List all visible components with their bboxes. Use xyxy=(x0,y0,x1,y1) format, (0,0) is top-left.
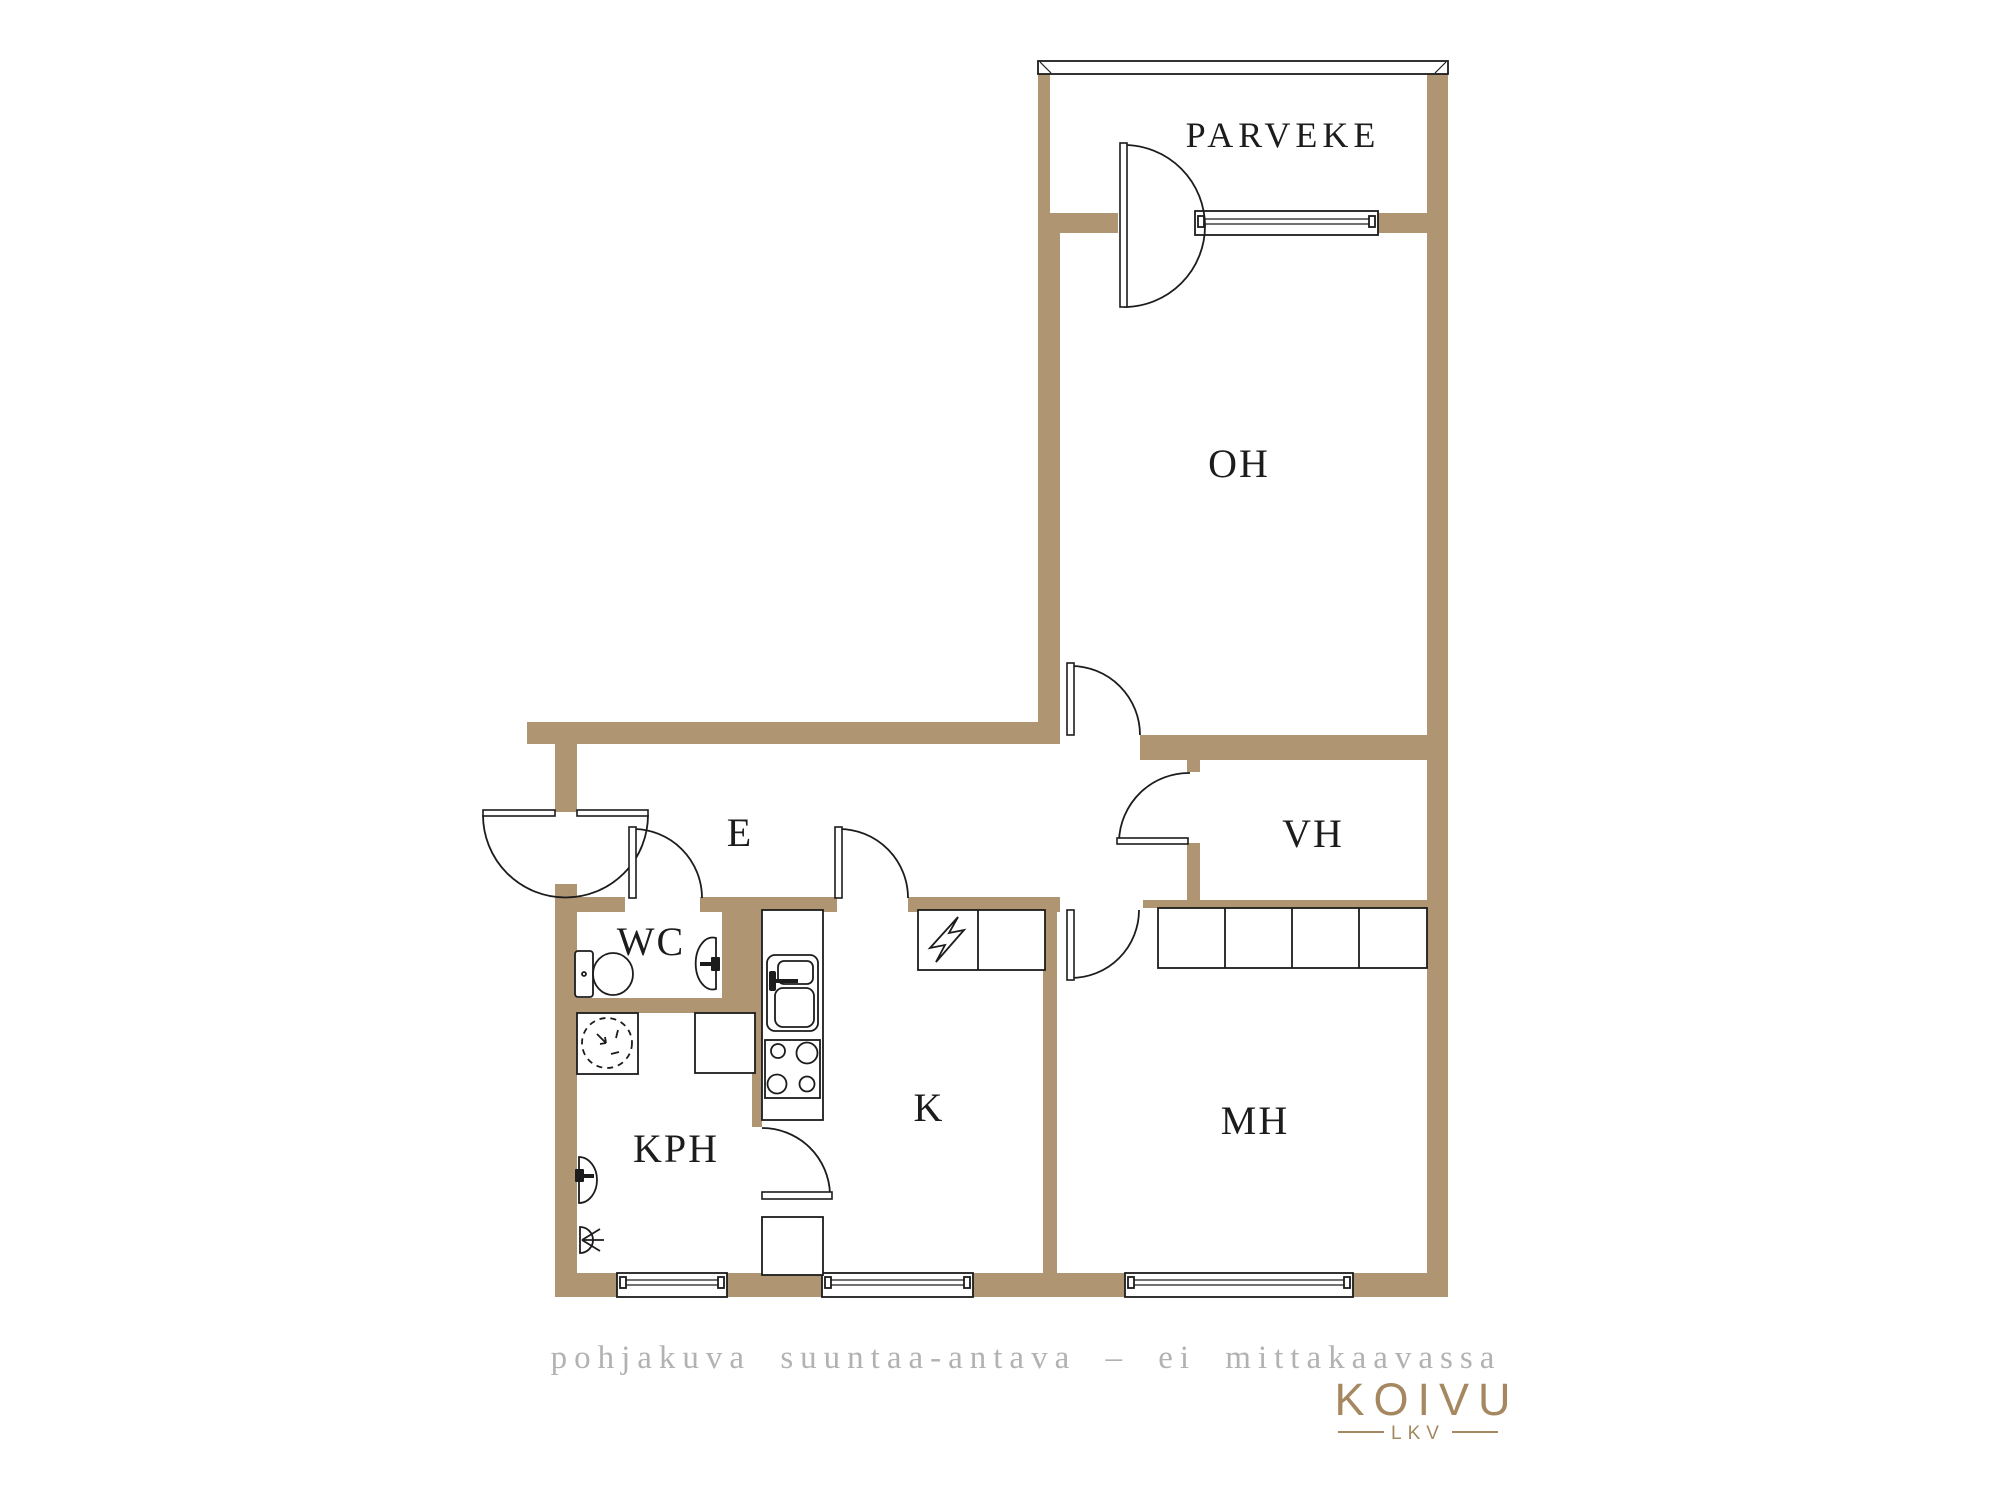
kitchen-cabinet xyxy=(762,1217,823,1275)
wall-segment xyxy=(1038,213,1060,744)
door-leaf xyxy=(483,810,555,816)
wall-segment xyxy=(577,998,762,1013)
door-swing-arc xyxy=(762,1128,830,1194)
door-leaf xyxy=(1120,143,1127,307)
wall-segment xyxy=(1187,843,1200,900)
wall-segment xyxy=(1143,900,1427,908)
wall-segment xyxy=(577,897,625,912)
mh-door xyxy=(1067,910,1139,980)
kph-sink xyxy=(575,1157,597,1203)
wc-sink xyxy=(696,938,720,990)
brand-logo: KOIVU LKV xyxy=(1334,1374,1519,1444)
wall-segment xyxy=(1378,213,1427,233)
room-label-wc: WC xyxy=(617,919,685,964)
wall-segment xyxy=(1187,747,1200,772)
utility-cabinet xyxy=(695,1013,755,1073)
wc-door xyxy=(629,827,702,898)
floor-plan-page: PARVEKE OH VH E WC KPH K MH pohjakuva su… xyxy=(0,0,2000,1500)
wall-segment xyxy=(1140,735,1427,760)
kph-door xyxy=(762,1128,832,1199)
door-swing-arc xyxy=(1071,666,1140,735)
kitchen-window xyxy=(822,1273,973,1297)
door-leaf xyxy=(1067,910,1074,980)
wall-segment xyxy=(722,897,762,1013)
vh-door xyxy=(1117,773,1190,844)
floor-drain xyxy=(580,1227,604,1253)
wall-segment xyxy=(555,744,577,812)
room-label-k: K xyxy=(914,1085,945,1130)
room-label-oh: OH xyxy=(1208,441,1270,486)
brand-logo-subtext: LKV xyxy=(1391,1423,1445,1444)
balcony-door xyxy=(1120,143,1205,307)
disclaimer-caption: pohjakuva suuntaa-antava – ei mittakaava… xyxy=(551,1340,1502,1376)
door-leaf xyxy=(762,1192,832,1199)
mh-window xyxy=(1125,1273,1353,1297)
electrical-cabinet xyxy=(918,910,1045,970)
door-swing-arc xyxy=(1124,145,1205,307)
floor-plan-drawing: PARVEKE OH VH E WC KPH K MH pohjakuva su… xyxy=(0,0,2000,1500)
door-leaf xyxy=(629,827,636,898)
mh-closets xyxy=(1158,908,1427,968)
door-swing-arc xyxy=(1071,910,1139,978)
door-leaf xyxy=(835,827,842,898)
wall-segment xyxy=(555,884,577,1297)
brand-logo-text: KOIVU xyxy=(1334,1374,1519,1425)
room-label-mh: MH xyxy=(1221,1098,1289,1143)
kitchen-sink xyxy=(767,955,818,1031)
kitchen-door xyxy=(835,827,908,898)
door-leaf xyxy=(577,810,648,816)
wall-segment xyxy=(527,722,1060,744)
stove xyxy=(765,1040,820,1098)
door-swing-arc xyxy=(839,829,908,898)
washing-machine xyxy=(577,1013,638,1074)
kph-window xyxy=(617,1273,727,1297)
door-leaf xyxy=(1117,838,1188,844)
balcony-window xyxy=(1195,211,1378,235)
balcony-railing xyxy=(1038,61,1448,74)
door-leaf xyxy=(1067,663,1074,735)
door-swing-arc xyxy=(633,829,702,898)
door-swing-arc xyxy=(1119,773,1190,841)
wall-segment xyxy=(1427,62,1448,1297)
room-label-parveke: PARVEKE xyxy=(1186,115,1381,155)
room-label-e: E xyxy=(727,810,753,855)
room-label-vh: VH xyxy=(1282,811,1344,856)
room-label-kph: KPH xyxy=(633,1126,719,1171)
oh-door xyxy=(1067,663,1140,735)
wall-segment xyxy=(1038,62,1050,213)
wall-segment xyxy=(1038,213,1118,233)
walls xyxy=(527,62,1448,1297)
